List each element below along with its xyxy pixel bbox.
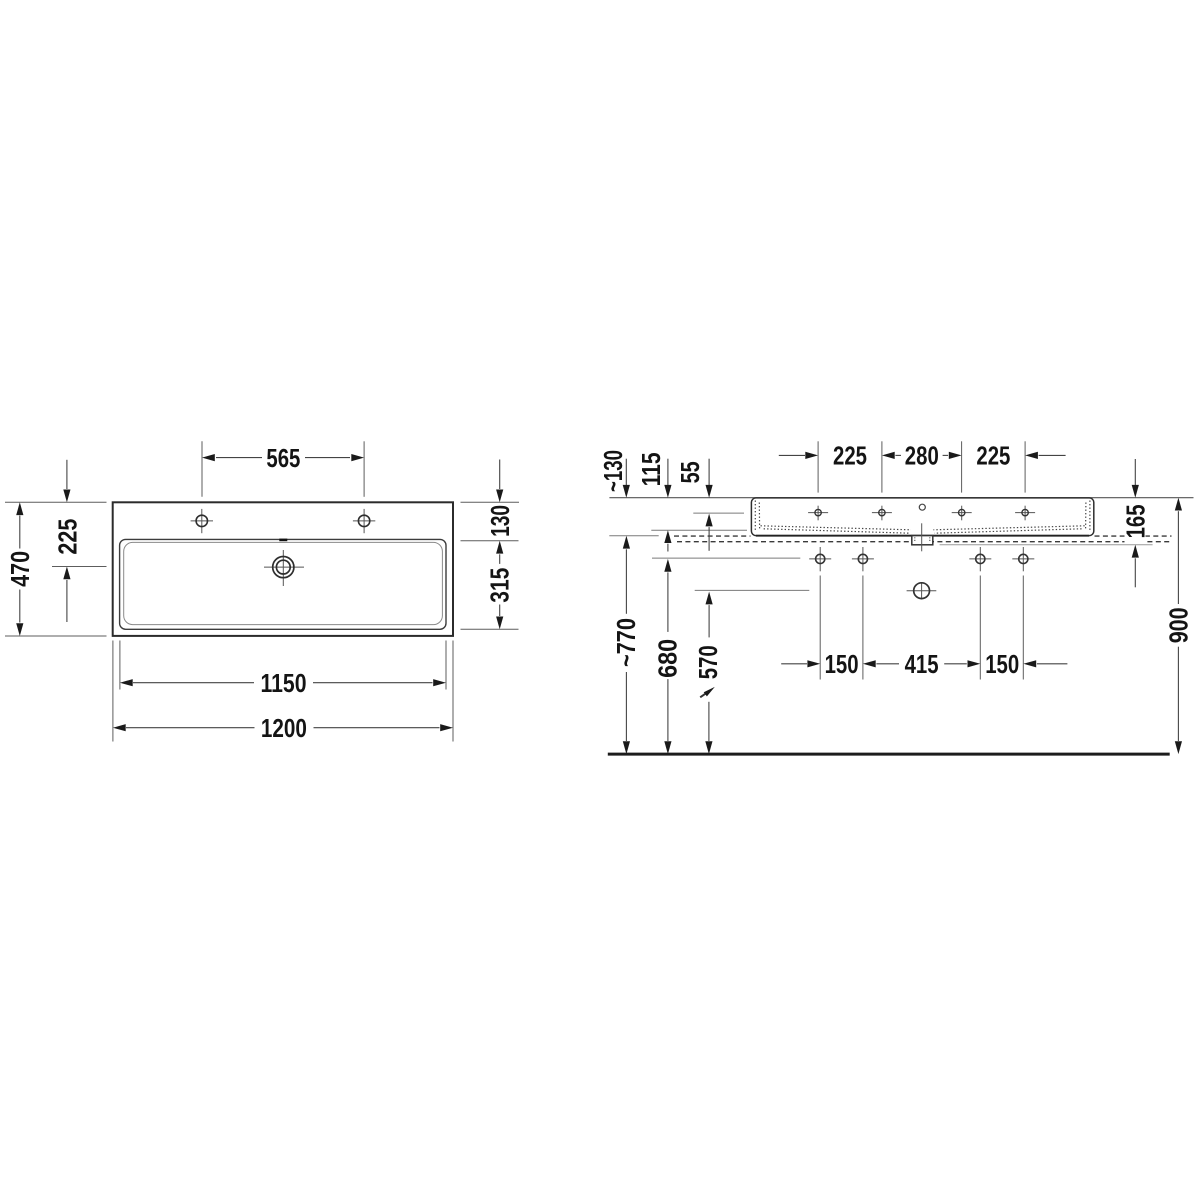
svg-text:225: 225 (833, 441, 867, 471)
svg-text:415: 415 (905, 649, 939, 679)
svg-text:315: 315 (485, 568, 515, 603)
svg-text:470: 470 (5, 551, 35, 587)
svg-text:~770: ~770 (611, 618, 641, 667)
svg-text:~130: ~130 (598, 450, 628, 492)
svg-text:225: 225 (976, 441, 1010, 471)
svg-text:1200: 1200 (261, 713, 307, 743)
svg-text:280: 280 (905, 441, 939, 471)
svg-text:115: 115 (636, 452, 666, 486)
svg-text:680: 680 (653, 639, 683, 678)
svg-text:565: 565 (266, 443, 300, 473)
svg-text:1150: 1150 (261, 668, 307, 698)
svg-text:150: 150 (825, 649, 859, 679)
svg-text:570: 570 (693, 645, 723, 679)
svg-text:150: 150 (985, 649, 1019, 679)
svg-text:130: 130 (485, 505, 515, 537)
svg-text:55: 55 (675, 461, 705, 483)
svg-text:225: 225 (53, 519, 83, 555)
svg-text:165: 165 (1121, 504, 1151, 538)
svg-text:900: 900 (1164, 607, 1194, 643)
